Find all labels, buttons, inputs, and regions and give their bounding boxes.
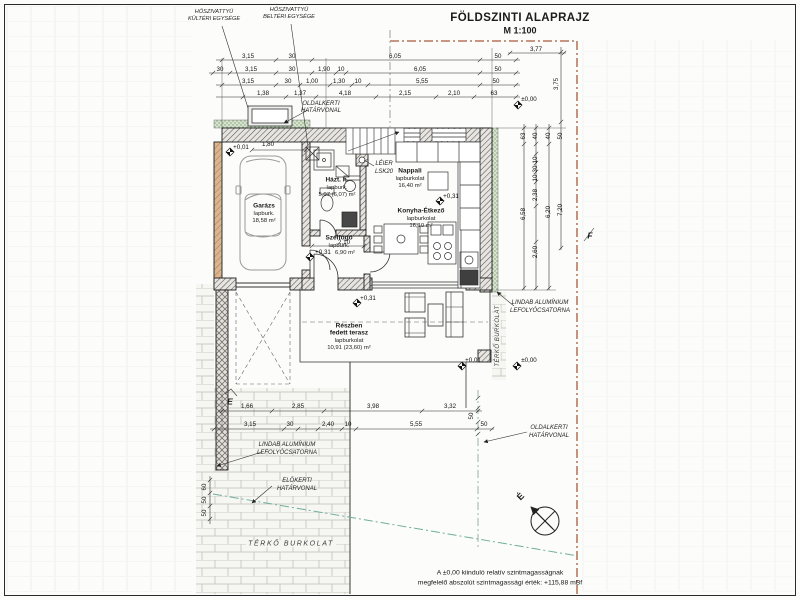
room-label-terrace: fedett terasz [330,331,368,338]
dim-label: 30 [217,67,224,74]
dim-label: 1,00 [306,79,318,86]
elevation-label-terrace: +0,31 [360,296,376,303]
room-finish-utility: lapburk. [327,185,348,191]
room-area-utility: 5,07 (6,07) m² [319,192,356,198]
dim-label: 40 [546,133,553,140]
dim-label: 2,10 [338,240,350,247]
dim-label: 50 [558,133,565,140]
dim-label: 1,80 [262,142,274,149]
terrace [300,290,490,362]
dim-label: 30 [287,422,294,429]
dim-label: 2,15 [399,91,411,98]
dim-label: 63 [491,91,498,98]
dim-label: 50 [202,510,209,517]
elevation-label-terrace-edge: +0,01 [465,358,481,365]
dim-label: 60 [202,484,209,491]
dim-label: 3,75 [554,78,561,90]
annotation-side-boundary-right: OLDALKERTI [530,425,567,431]
dim-label: 1,37 [294,91,306,98]
annotation-side-boundary-top: OLDALKERTI [302,101,339,107]
dim-label: 2,40 [322,422,334,429]
dim-label: 2,10 [448,91,460,98]
dim-label: 10 [355,79,362,86]
dim-label: 50 [493,79,500,86]
room-area-kitchen: 16,10 m² [409,223,432,229]
room-label-living: Nappali [398,169,421,176]
annotation-front-boundary: HATÁRVONAL [277,486,317,492]
annotation-side-boundary-top: HATÁRVONAL [301,108,341,114]
room-area-vestibule: 6,90 m² [335,250,355,256]
dim-label: 3,32 [444,404,456,411]
garage-door [236,283,290,384]
annotation-front-boundary: ELŐKERTI [282,478,312,484]
dim-label: 50 [481,422,488,429]
dim-label: 10 [338,67,345,74]
dim-label: 5,55 [410,422,422,429]
dim-label: 6,20 [546,206,553,218]
room-finish-kitchen: lapburkolat [407,216,436,222]
page-title: FÖLDSZINTI ALAPRAJZ [450,12,589,24]
dim-label: 6,05 [389,54,401,61]
elevation-label-se: ±0,00 [521,358,536,365]
dim-label: 6,58 [521,208,528,220]
drawing-scale: M 1:100 [503,26,536,35]
dim-label: 2,38 [533,189,540,201]
dim-label: 3,15 [242,54,254,61]
elevation-label-vestibule: +0,31 [315,250,331,257]
north-compass-icon [531,507,559,535]
dim-label: 10 [533,175,540,182]
dim-label: 7,20 [558,204,565,216]
room-label-utility: Házt. h. [325,178,348,185]
annotation-paving-bottom: TÉRKŐ BURKOLAT [246,540,336,547]
annotation-paving-vertical: TÉRKŐ BURKOLAT [495,305,501,366]
elevation-label-garage: +0,01 [233,145,249,152]
dim-label: 10 [345,422,352,429]
staircase [346,128,404,154]
dim-label: 3,15 [245,67,257,74]
annotation-gutter-left: LEFOLYÓCSATORNA [257,450,317,456]
dim-label: 1,38 [257,91,269,98]
section-marker-f: F [587,232,592,241]
dim-label: 6,05 [414,67,426,74]
dim-label: 63 [521,133,528,140]
dim-label: 30 [289,67,296,74]
dim-label: 50 [495,67,502,74]
heat-pump-outdoor-unit [248,106,292,126]
dim-label: 5,55 [416,79,428,86]
annotation-gutter-left: LINDAB ALUMÍNIUM [259,442,316,448]
dim-label: 50 [202,497,209,504]
elevation-label-ne: ±0,00 [521,97,536,104]
dim-label: 40 [533,133,540,140]
annotation-chimney: LSK20 [375,169,393,175]
dim-label: 10 [533,157,540,164]
annotation-heatpump-indoor: BELTÉRI EGYSÉGE [263,15,315,21]
dim-label: 1,66 [241,404,253,411]
annotation-heatpump-outdoor: HŐSZIVATTYÚ [195,10,233,16]
dim-label: 3,15 [244,422,256,429]
room-finish-terrace: lapburkolat [335,338,364,344]
floorplan-sheet: FÖLDSZINTI ALAPRAJZ M 1:100 HŐSZIVATTYÚ … [0,0,800,600]
dim-label: 30 [289,54,296,61]
dim-label: 50 [469,413,476,420]
room-finish-garage: lapburk. [254,211,275,217]
dim-label: 1,90 [318,67,330,74]
dim-label: 3,15 [242,79,254,86]
annotation-chimney: LÉIER [375,161,392,167]
datum-note: A ±0,00 kiinduló relatív szintmagasságna… [437,569,564,576]
room-label-kitchen: Konyha-Étkező [398,209,445,216]
dim-label: 50 [495,54,502,61]
dim-label: 30 [533,166,540,173]
dim-label: 3,98 [367,404,379,411]
annotation-gutter-right: LEFOLYÓCSATORNA [510,308,570,314]
dim-label: 2,60 [533,246,540,258]
annotation-heatpump-outdoor: KÜLTÉRI EGYSÉGE [188,17,240,23]
annotation-heatpump-indoor: HŐSZIVATTYÚ [270,8,308,14]
room-area-terrace: 10,91 (23,60) m² [327,345,371,351]
dim-label: 2,85 [292,404,304,411]
dim-label: 1,30 [333,79,345,86]
dim-label: 4,18 [339,91,351,98]
room-area-living: 16,40 m² [398,183,421,189]
elevation-label-living: +0,31 [443,194,459,201]
section-marker-e: E [227,398,233,407]
room-label-garage: Garázs [253,204,275,211]
room-finish-living: lapburkolat [396,176,425,182]
room-area-garage: 18,58 m² [252,218,275,224]
annotation-side-boundary-right: HATÁRVONAL [529,433,569,439]
datum-note: megfelelő abszolút szintmagassági érték:… [418,579,582,586]
annotation-gutter-right: LINDAB ALUMÍNIUM [512,300,569,306]
dim-label: 30 [285,79,292,86]
dim-label: 3,77 [530,47,542,54]
